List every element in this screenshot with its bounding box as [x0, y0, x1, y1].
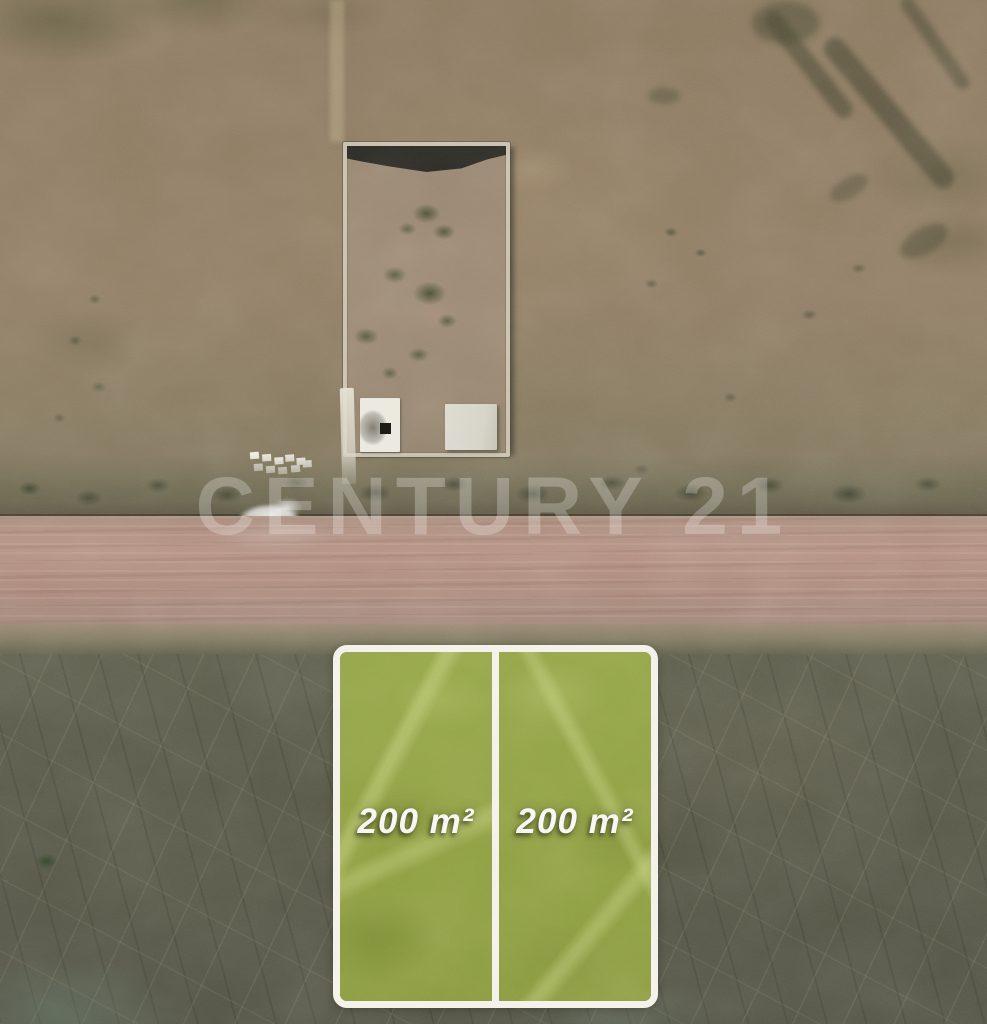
wall-shadow — [347, 146, 506, 172]
trail-mark — [648, 88, 680, 104]
parcel-2: 200 m² — [499, 652, 651, 1001]
concrete-pad-left — [360, 398, 400, 452]
parcel-1-area-label: 200 m² — [358, 802, 475, 842]
trail-mark — [898, 0, 973, 92]
trail-mark — [895, 217, 953, 266]
parcel-1: 200 m² — [340, 652, 492, 1001]
parcel-2-area-label: 200 m² — [517, 802, 634, 842]
walled-lot — [343, 142, 510, 457]
dirt-path — [330, 0, 344, 142]
pad-opening — [380, 423, 391, 434]
trail-mark — [826, 169, 872, 207]
century21-watermark: CENTURY 21 — [196, 466, 792, 548]
parcel-divider — [492, 652, 499, 1001]
parcel-overlay: 200 m² 200 m² — [333, 645, 658, 1008]
concrete-pad-right — [445, 404, 497, 450]
aerial-photo: 200 m² 200 m² CENTURY 21 — [0, 0, 987, 1024]
